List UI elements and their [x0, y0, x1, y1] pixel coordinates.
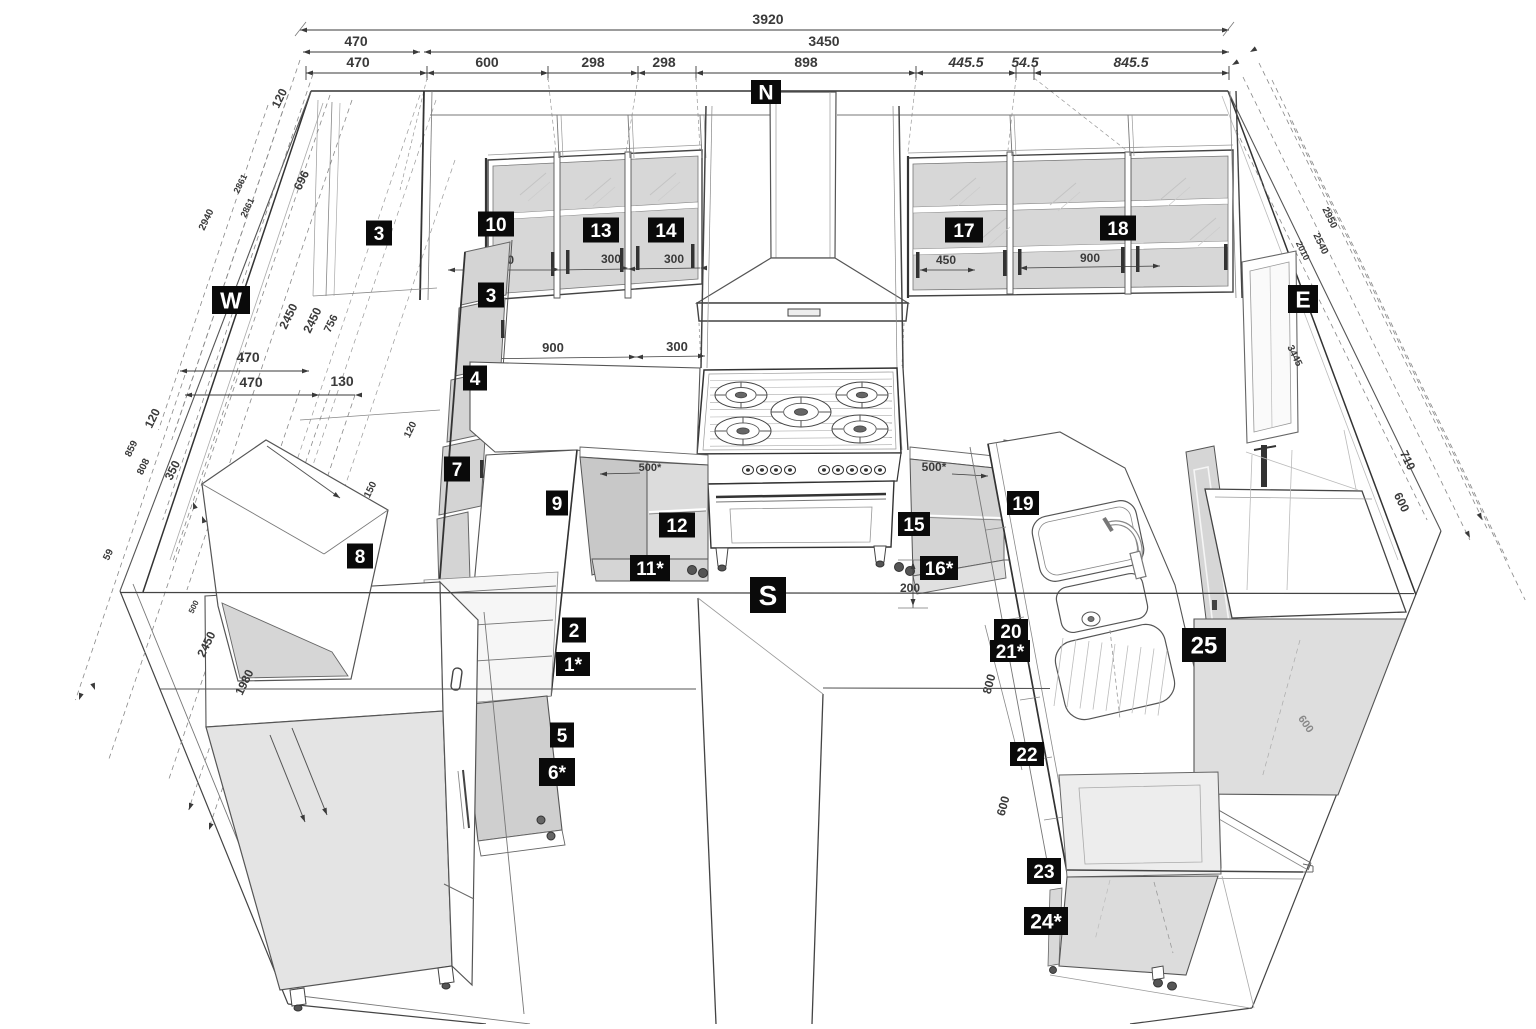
svg-text:23: 23 — [1033, 862, 1054, 883]
svg-text:6*: 6* — [548, 763, 567, 784]
svg-text:12: 12 — [666, 516, 687, 537]
svg-text:500*: 500* — [639, 462, 662, 474]
svg-text:470: 470 — [344, 33, 368, 49]
svg-text:N: N — [758, 82, 773, 105]
svg-text:1*: 1* — [564, 655, 583, 676]
svg-text:2: 2 — [569, 621, 580, 642]
svg-text:470: 470 — [239, 374, 263, 390]
svg-text:5: 5 — [557, 726, 568, 747]
svg-text:13: 13 — [590, 221, 611, 242]
svg-text:24*: 24* — [1030, 911, 1062, 934]
svg-text:130: 130 — [330, 373, 354, 389]
svg-text:14: 14 — [655, 221, 677, 242]
svg-text:300: 300 — [664, 252, 684, 266]
svg-text:17: 17 — [953, 221, 974, 242]
svg-text:10: 10 — [485, 215, 506, 236]
svg-text:21*: 21* — [996, 642, 1025, 663]
svg-text:18: 18 — [1107, 219, 1128, 240]
svg-text:20: 20 — [1000, 622, 1021, 643]
svg-text:3: 3 — [486, 286, 497, 307]
svg-text:9: 9 — [552, 494, 563, 515]
svg-text:7: 7 — [452, 460, 463, 481]
svg-text:54.5: 54.5 — [1011, 54, 1038, 70]
svg-text:900: 900 — [1080, 251, 1100, 265]
svg-text:8: 8 — [355, 547, 366, 568]
svg-text:470: 470 — [236, 349, 260, 365]
svg-text:19: 19 — [1012, 494, 1033, 515]
svg-text:W: W — [220, 287, 242, 313]
svg-text:450: 450 — [936, 253, 956, 267]
svg-text:3450: 3450 — [808, 33, 839, 49]
svg-text:898: 898 — [794, 54, 818, 70]
svg-text:3920: 3920 — [752, 11, 783, 27]
svg-text:4: 4 — [470, 369, 481, 390]
svg-text:300: 300 — [601, 252, 621, 266]
svg-text:11*: 11* — [636, 559, 664, 580]
svg-text:S: S — [759, 580, 778, 611]
svg-text:900: 900 — [542, 340, 564, 355]
svg-text:845.5: 845.5 — [1113, 54, 1148, 70]
svg-text:E: E — [1295, 286, 1310, 312]
svg-text:500*: 500* — [922, 460, 947, 474]
svg-text:15: 15 — [903, 515, 925, 536]
svg-text:600: 600 — [475, 54, 499, 70]
svg-text:298: 298 — [652, 54, 676, 70]
svg-text:22: 22 — [1016, 745, 1037, 766]
svg-text:298: 298 — [581, 54, 605, 70]
svg-text:300: 300 — [666, 339, 688, 354]
svg-text:3: 3 — [374, 224, 385, 245]
svg-text:470: 470 — [346, 54, 370, 70]
svg-text:445.5: 445.5 — [947, 54, 983, 70]
svg-text:16*: 16* — [925, 559, 954, 580]
svg-text:25: 25 — [1191, 633, 1218, 660]
